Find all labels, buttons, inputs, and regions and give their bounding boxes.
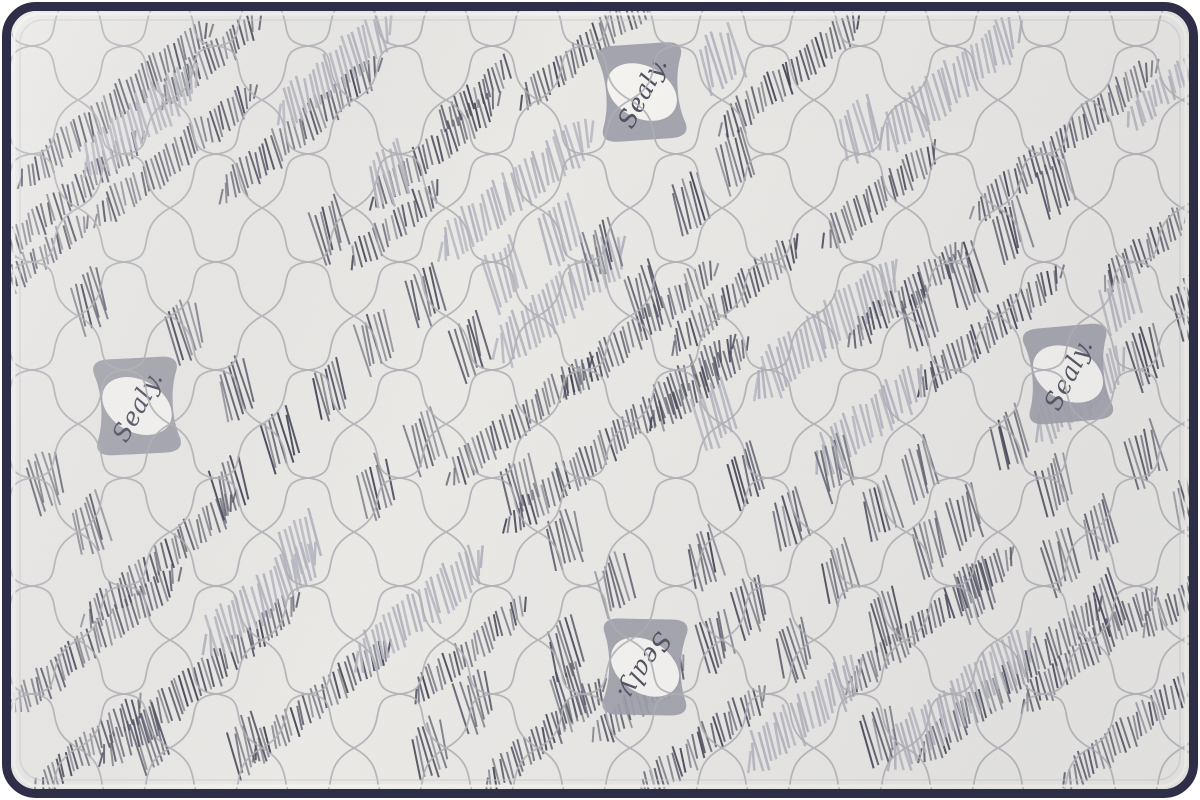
mattress-fabric: Sealy.Sealy.Sealy.Sealy. xyxy=(2,2,1198,798)
mattress-photo: Sealy.Sealy.Sealy.Sealy. xyxy=(0,0,1200,800)
mattress: Sealy.Sealy.Sealy.Sealy. xyxy=(2,2,1198,798)
fabric-grain xyxy=(2,2,1198,798)
